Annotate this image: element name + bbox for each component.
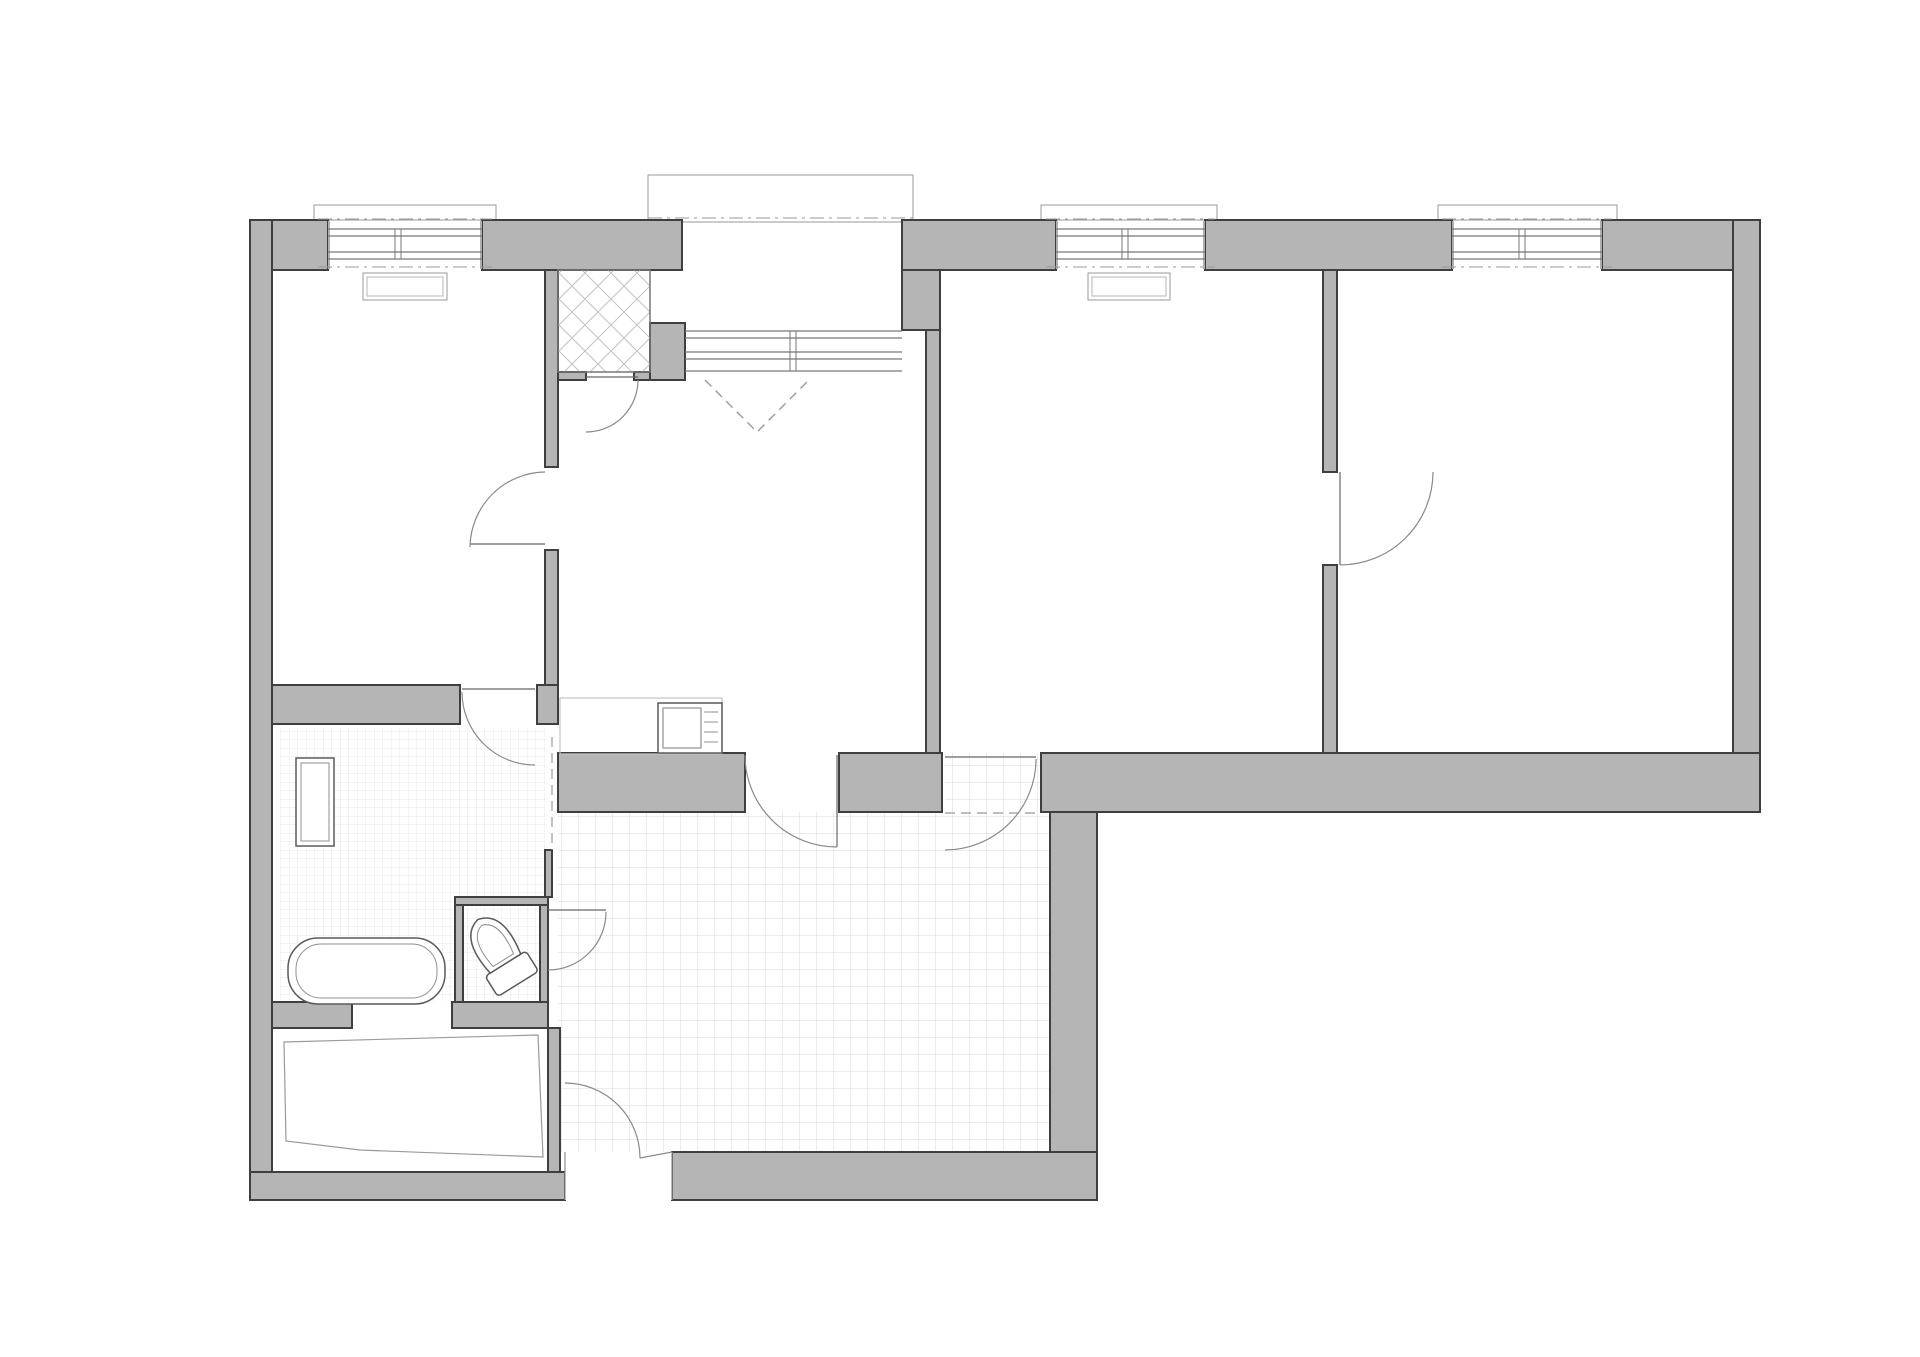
storage-closet-outline [284,1035,543,1157]
vent-shaft-hatch [558,270,650,372]
window-4-opening [1452,221,1602,269]
shaft-stub-right [634,372,650,380]
kitchen-bottom-stub [839,753,942,812]
hall-right-exterior-wall [1050,812,1097,1200]
storage-right-wall [548,1028,560,1172]
kitchen-bottom-wall [558,753,745,812]
floor-plan-page [0,0,1920,1357]
wc-left-wall [455,905,463,1002]
shaft-stub-left [558,372,586,380]
hall-tile-doorway [945,753,1041,812]
ventilation-shaft [558,270,650,372]
balcony-jamb-block [650,323,685,380]
bedroom-bottom-wall-corner [537,685,558,724]
vestibule-wall [545,850,552,897]
balcony-slab [648,175,913,222]
door-arc-bedroom-kitchen [470,472,545,547]
room3-room4-wall-upper [1323,270,1337,472]
bedroom-kitchen-wall-upper [545,270,558,467]
sill-window-3 [1041,205,1217,220]
balcony-door-swing-dashes [705,380,809,432]
top-wall-c [902,220,1056,270]
bottom-wall-right [672,1152,1097,1200]
plan-layers [250,175,1760,1200]
window-1-opening [328,221,482,269]
left-exterior-wall [250,220,272,1200]
sill-window-1 [314,205,496,220]
sill-window-4 [1438,205,1617,220]
wc-top-wall [455,897,548,905]
kitchen-sink-unit [658,703,722,753]
wc-right-wall [540,905,548,1002]
center-top-leg [902,270,940,330]
room3-room4-wall-lower [1323,565,1337,753]
door-arc-shaft-nook [586,380,638,432]
bedroom-bottom-wall [272,685,460,724]
bath-pier-right [452,1002,548,1028]
bathtub [288,938,445,1004]
kitchen-room3-wall [926,330,940,753]
top-wall-d [1205,220,1452,270]
floor-plan-canvas [0,0,1920,1357]
right-section-bottom-wall [1041,753,1760,812]
top-wall-b [482,220,682,270]
entrance-opening [565,1152,672,1200]
bottom-wall-left [250,1172,565,1200]
window-3-opening [1056,221,1205,269]
door-arc-room4 [1340,472,1433,565]
window-sills [314,175,1617,222]
bath-pier-left [272,1002,352,1028]
right-exterior-wall [1733,220,1760,812]
hall-tile-entry [560,1028,672,1152]
washing-machine [296,758,334,846]
